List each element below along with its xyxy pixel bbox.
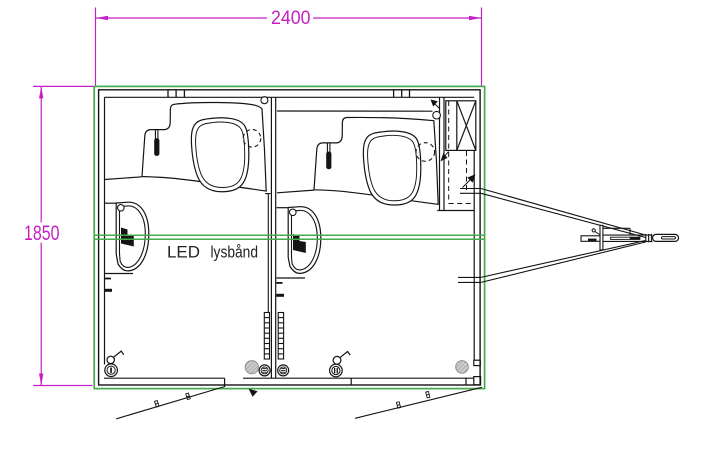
svg-text:lysbånd: lysbånd	[211, 244, 259, 262]
svg-text:2400: 2400	[271, 7, 311, 29]
svg-text:1850: 1850	[24, 221, 60, 245]
svg-text:LED: LED	[167, 244, 200, 262]
